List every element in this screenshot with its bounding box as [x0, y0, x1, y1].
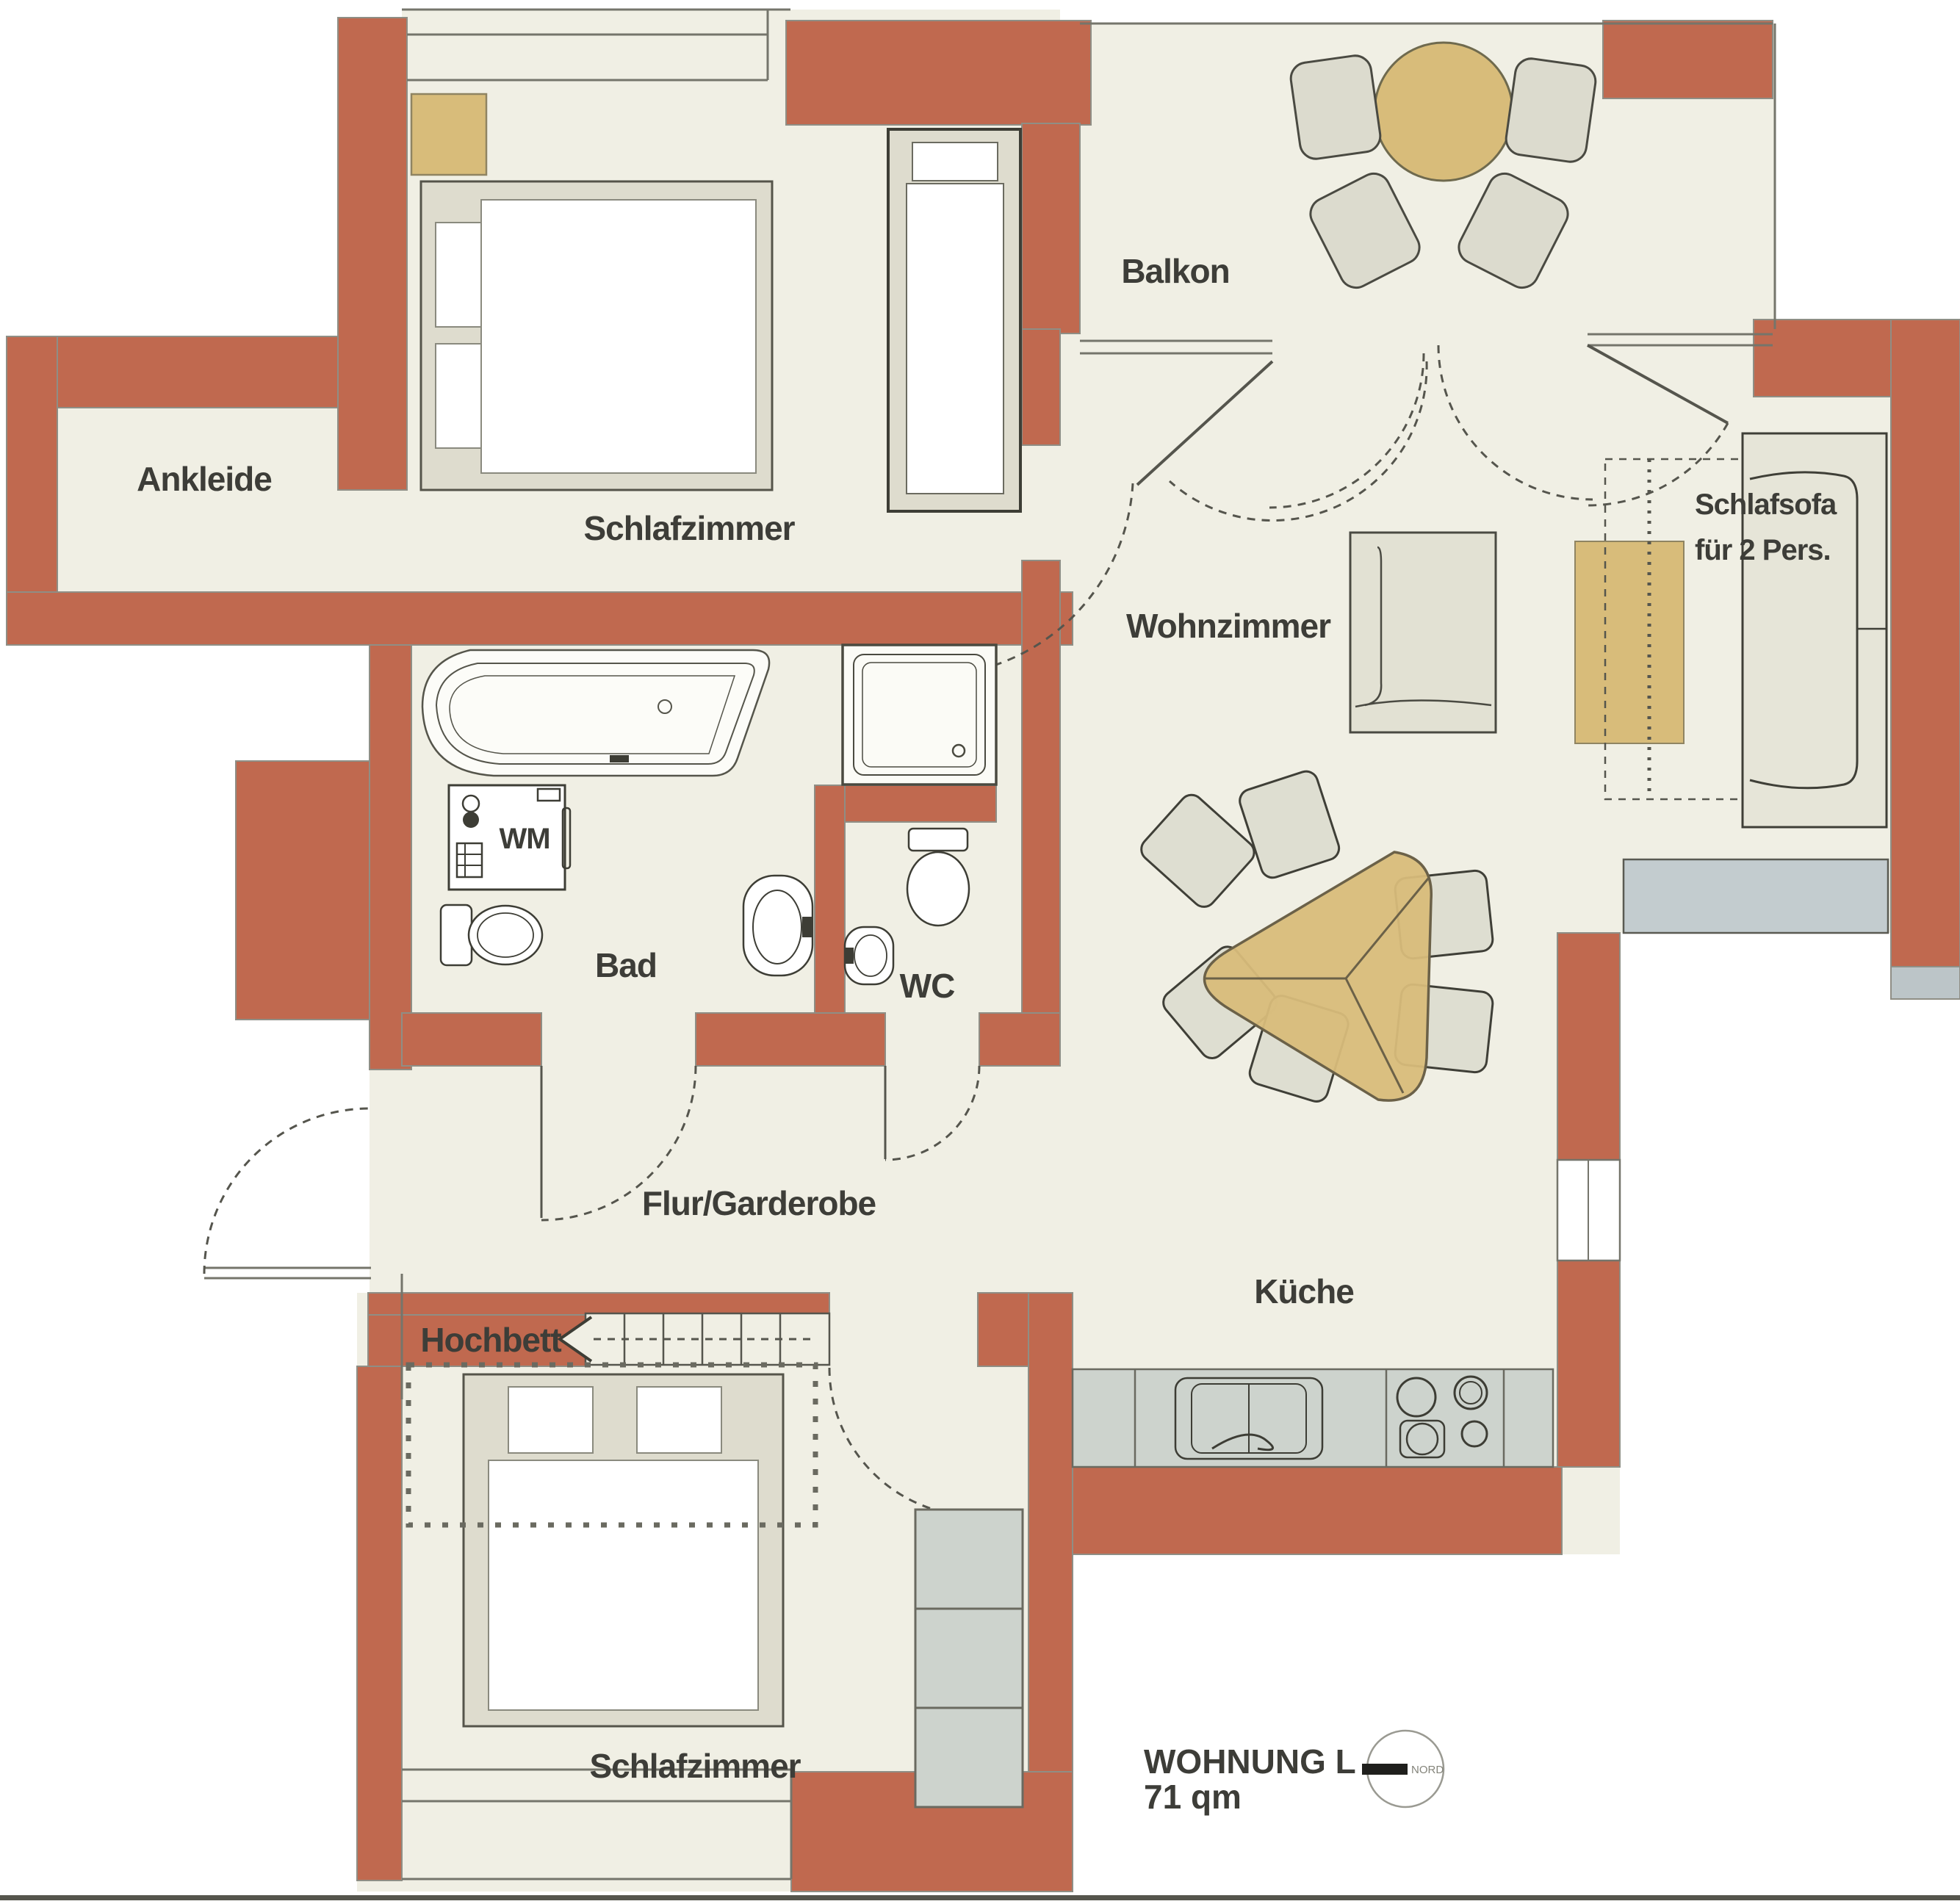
toilet-bad [441, 905, 542, 965]
label-flur: Flur/Garderobe [642, 1184, 876, 1222]
wall-right-outer [1891, 320, 1960, 984]
label-schlafsofa-1: Schlafsofa [1695, 488, 1837, 521]
stairs-hochbett [560, 1313, 829, 1365]
floorplan-canvas: Ankleide Schlafzimmer Balkon Wohnzimmer … [0, 0, 1960, 1904]
round-table [1374, 43, 1513, 181]
label-area: 71 qm [1144, 1778, 1242, 1816]
kitchen-counter [1073, 1369, 1553, 1467]
wall-south-of-bedrooms [7, 592, 1073, 645]
wall-bad-west [370, 645, 411, 1070]
label-wm: WM [499, 823, 550, 855]
label-title: WOHNUNG L [1144, 1742, 1356, 1781]
wall-bedroom-east-upper [1022, 329, 1060, 445]
label-balkon: Balkon [1121, 252, 1229, 290]
bed-top-bedroom [421, 181, 772, 490]
sink-wc [845, 927, 893, 984]
kitchen-window [1557, 1160, 1620, 1261]
floorplan-svg: Ankleide Schlafzimmer Balkon Wohnzimmer … [0, 0, 1960, 1904]
wall-kitchen-east-upper [1557, 933, 1620, 1160]
label-hochbett: Hochbett [420, 1321, 561, 1359]
gold-cabinet-top-bedroom [411, 94, 486, 175]
sink-bad [743, 876, 813, 976]
pillow [436, 223, 481, 327]
wall-bedroom-north-block [786, 21, 1091, 125]
wall-balcony-pier [1603, 21, 1773, 98]
wall-bad-south-3 [979, 1013, 1060, 1066]
wall-bad-wc-partition [815, 785, 845, 1013]
wall-wing-east [1028, 1293, 1073, 1772]
door-entrance [204, 1108, 370, 1274]
wall-bedroom-east-lower [1022, 560, 1060, 1066]
wardrobe-bottom-bedroom [915, 1510, 1023, 1807]
wall-balcony-west [1022, 123, 1080, 333]
label-schlafzimmer-bottom: Schlafzimmer [589, 1747, 801, 1785]
label-schlafzimmer-top: Schlafzimmer [583, 509, 795, 547]
wall-wc-north [845, 785, 996, 822]
pillow [508, 1387, 593, 1453]
bathtub [422, 650, 769, 776]
label-nord: NORD [1411, 1764, 1444, 1776]
label-ankleide: Ankleide [137, 460, 272, 498]
label-schlafsofa-2: für 2 Pers. [1695, 534, 1831, 566]
north-compass: NORD [1362, 1731, 1444, 1807]
wall-bad-south-1 [402, 1013, 541, 1066]
wall-end-cap [1891, 967, 1960, 999]
label-wc: WC [900, 967, 955, 1005]
shower [843, 645, 996, 785]
wall-wing-west [357, 1366, 402, 1880]
bed-bottom-bedroom [464, 1374, 783, 1726]
label-wohnzimmer: Wohnzimmer [1126, 607, 1331, 645]
armchair [1350, 533, 1496, 732]
toilet-wc [907, 829, 969, 926]
sideboard-bench [1624, 859, 1888, 933]
wall-chimney [236, 761, 370, 1020]
gold-rug [1575, 541, 1684, 743]
wall-bad-south-2 [696, 1013, 885, 1066]
label-bad: Bad [595, 946, 657, 984]
pillow [436, 344, 481, 448]
wall-kitchen-east-lower [1557, 1261, 1620, 1467]
north-arrow-bar [1362, 1764, 1408, 1775]
wall-kitchen-south [1073, 1467, 1562, 1554]
wall-bedroom-west [338, 18, 407, 490]
pillow [637, 1387, 721, 1453]
wall-wing-north-strip [368, 1293, 829, 1315]
crib [888, 129, 1020, 511]
label-kueche: Küche [1254, 1272, 1354, 1310]
